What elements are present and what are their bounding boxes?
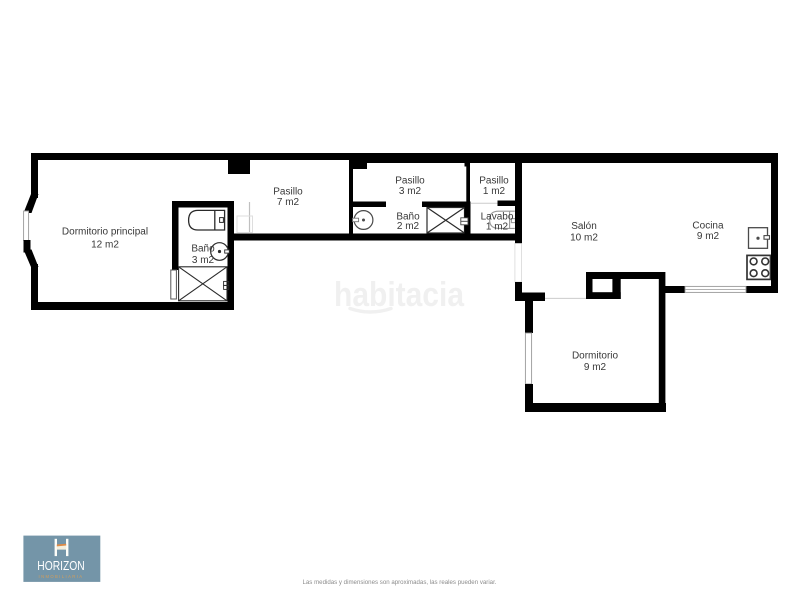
svg-text:12 m2: 12 m2 — [91, 240, 119, 251]
svg-text:Dormitorio principal: Dormitorio principal — [62, 227, 148, 238]
svg-text:9 m2: 9 m2 — [584, 362, 607, 373]
svg-text:INMOBILIARIA: INMOBILIARIA — [39, 574, 84, 579]
svg-text:3 m2: 3 m2 — [399, 186, 422, 197]
svg-text:Salón: Salón — [571, 221, 597, 232]
svg-text:Dormitorio: Dormitorio — [572, 350, 619, 361]
svg-text:1 m2: 1 m2 — [486, 222, 509, 233]
svg-text:2 m2: 2 m2 — [397, 221, 420, 232]
svg-text:Pasillo: Pasillo — [273, 187, 303, 198]
svg-text:Baño: Baño — [191, 244, 215, 255]
svg-text:9 m2: 9 m2 — [697, 231, 720, 242]
svg-text:3 m2: 3 m2 — [192, 255, 215, 266]
svg-text:Cocina: Cocina — [692, 221, 724, 232]
svg-text:Las medidas y dimensiones son: Las medidas y dimensiones son aproximada… — [303, 579, 497, 586]
svg-text:HORIZON: HORIZON — [37, 559, 85, 573]
svg-text:1 m2: 1 m2 — [483, 186, 506, 197]
svg-text:10 m2: 10 m2 — [570, 233, 598, 244]
svg-text:7 m2: 7 m2 — [277, 197, 300, 208]
